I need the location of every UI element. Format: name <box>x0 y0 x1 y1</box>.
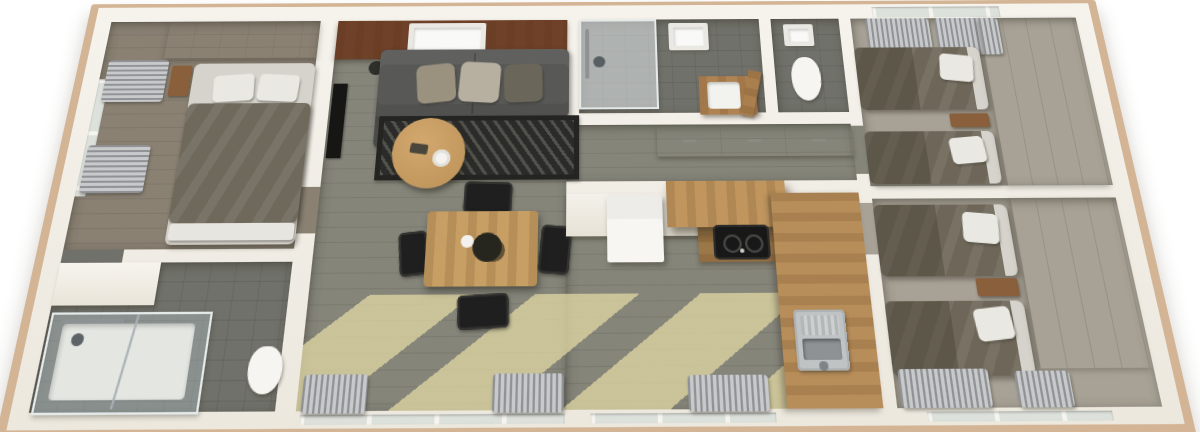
south-curtain-3 <box>687 375 770 412</box>
shower-room-skylight <box>668 23 709 50</box>
shower2-enclosure <box>579 20 659 110</box>
bedroom3-pillow-a <box>962 212 1000 245</box>
master-duvet <box>168 103 311 223</box>
cushion-right <box>504 63 543 102</box>
bedroom2-pillow-b <box>948 136 988 165</box>
drawer-handle-1 <box>683 139 697 142</box>
shower-enclosure <box>31 312 213 416</box>
cooktop-control-dot <box>740 249 745 253</box>
refrigerator <box>607 196 665 263</box>
sink-basin <box>802 339 842 360</box>
south-curtain-2 <box>492 373 564 413</box>
cooktop <box>715 227 769 258</box>
south-window-kitchen <box>590 412 776 423</box>
floorplan-render <box>0 0 1200 432</box>
vanity-sink <box>707 82 741 109</box>
shower-tray <box>48 323 196 400</box>
bedroom3-curtain-right <box>1014 371 1076 408</box>
master-curtain-upper <box>101 60 170 102</box>
master-bed-footer <box>167 223 295 241</box>
south-window-living <box>299 414 565 425</box>
bedroom3-curtain-left <box>897 369 993 408</box>
bed-a-blanket <box>854 47 921 110</box>
bedroom3-nightstand <box>975 278 1020 296</box>
remote-control <box>409 143 429 155</box>
faucet-icon <box>819 361 829 371</box>
bath-vanity <box>51 262 161 305</box>
drawer-handle-3 <box>812 139 826 142</box>
bedroom2-nightstand <box>949 113 990 127</box>
master-pillow-left <box>212 73 255 102</box>
bed-b-blanket <box>864 131 932 184</box>
bed3a-blanket <box>873 205 945 277</box>
shower2-head-icon <box>593 56 605 67</box>
drawer-handle-2 <box>747 139 761 142</box>
master-curtain-lower <box>78 145 151 193</box>
bedroom2-pillow-a <box>939 53 974 82</box>
bathroom-door-gap <box>60 250 124 263</box>
dining-chair-north <box>463 181 513 214</box>
shower-rail <box>61 319 125 324</box>
master-overhead-cabinet <box>164 21 321 58</box>
south-curtain-1 <box>300 374 368 414</box>
south-window-bedroom3 <box>927 411 1114 422</box>
wc-skylight <box>783 24 815 46</box>
dining-chair-south <box>457 293 509 330</box>
shower2-rail <box>585 29 589 79</box>
building <box>6 3 1184 430</box>
bedroom2-window <box>871 6 1000 17</box>
burner-right-icon <box>744 234 764 253</box>
master-pillow-right <box>256 74 301 102</box>
kitchen-overhead-cabinet <box>666 180 788 227</box>
bed3b-blanket <box>884 301 959 376</box>
sink-drainboard <box>800 315 840 335</box>
bedroom3-bed-b <box>884 301 1036 377</box>
cushion-left <box>416 63 456 105</box>
kitchen-sink <box>793 310 851 371</box>
cushion-middle <box>457 61 501 103</box>
